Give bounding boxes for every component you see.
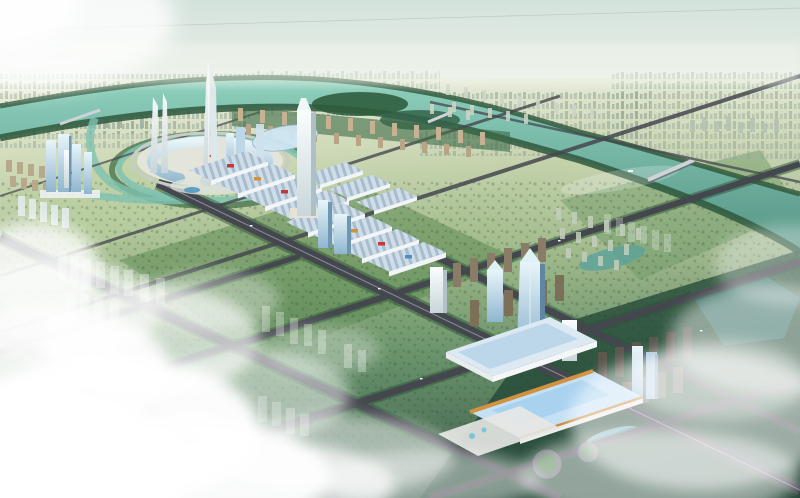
rendering-canvas: [0, 0, 800, 498]
boat: [628, 170, 633, 172]
glass-tower-b-side: [347, 216, 351, 254]
fountain-1: [469, 433, 475, 439]
blue-dome-hall: [184, 187, 200, 193]
glass-tower-b: [334, 214, 347, 254]
glass-tower-a-side: [328, 202, 332, 248]
aerial-city-rendering: [0, 0, 800, 498]
glass-tower-a: [318, 200, 328, 248]
riverbend-forest: [312, 92, 408, 116]
white-tower-mid-side: [443, 270, 447, 313]
glass-tower-c: [487, 270, 503, 322]
white-tower-mid: [430, 267, 443, 313]
fountain-2: [482, 428, 487, 433]
axis-supertall-white: [297, 110, 311, 216]
axis-supertall-side: [311, 113, 316, 216]
hall-sign: [227, 164, 234, 168]
